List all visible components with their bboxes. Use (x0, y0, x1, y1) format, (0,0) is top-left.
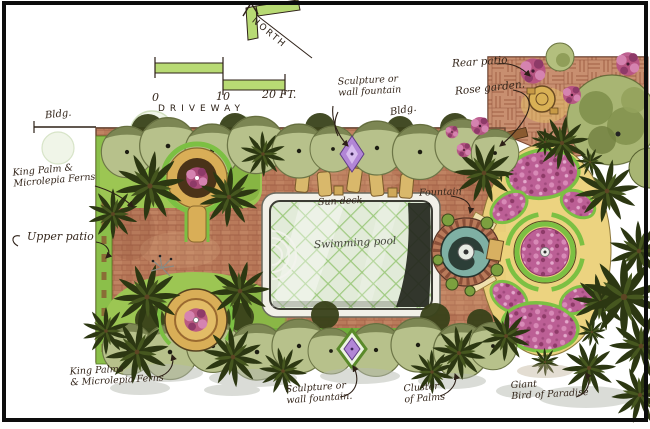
scale-tick-mid: 10 (216, 91, 230, 103)
sculpture-top-label: Sculpture or wall fountain (337, 74, 401, 99)
swimming-pool (262, 193, 440, 317)
fountain-label: Fountain (419, 187, 462, 199)
scale-tick-end: 20 FT. (262, 89, 296, 101)
giant-bird-label: Giant Bird of Paradise (510, 377, 588, 402)
landscape-plan: NORTH 0 10 20 FT. DRIVEWAY Sculpture or … (0, 0, 650, 429)
scale-tick-0: 0 (152, 92, 159, 104)
cluster-palms-label: Cluster of Palms (403, 382, 445, 406)
driveway-label: DRIVEWAY (158, 104, 245, 114)
upper-patio-label: Upper patio (27, 231, 94, 243)
